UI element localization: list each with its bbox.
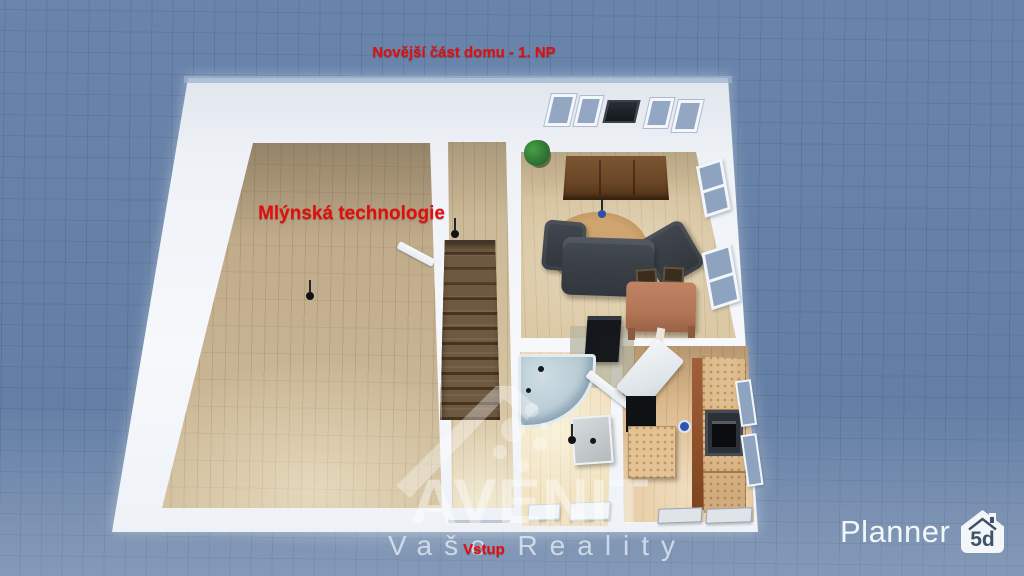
oven <box>705 410 743 456</box>
bath-mat <box>527 503 560 520</box>
floor-mat <box>705 507 752 524</box>
bathroom-sink <box>570 415 613 466</box>
wall-top-edge <box>184 76 732 83</box>
planner5d-logo: Planner 5d <box>840 508 1006 555</box>
dining-chair <box>663 266 685 283</box>
ceiling-lamp <box>451 230 459 238</box>
tv-screen <box>602 100 640 123</box>
sideboard <box>563 156 669 200</box>
floorplan-title-label: Novější část domu - 1. NP <box>314 44 614 61</box>
cabinet-side-panel <box>692 358 704 510</box>
ceiling-lamp <box>568 436 576 444</box>
dining-table <box>626 281 697 332</box>
staircase <box>440 240 500 420</box>
bathroom-cabinet <box>598 336 618 362</box>
ceiling-lamp <box>306 292 314 300</box>
entrance-door <box>448 510 510 523</box>
planner-wordmark: Planner <box>840 514 950 550</box>
ceiling-lamp <box>598 210 606 218</box>
kitchen-counter <box>628 426 676 478</box>
scene-viewport[interactable]: AVENIT Vaše Reality Novější část domu - … <box>0 0 1024 576</box>
room-label: Mlýnská technologie <box>229 203 474 225</box>
badge-text: 5d <box>971 528 996 551</box>
marker-dot <box>678 420 691 433</box>
floor-mat <box>657 507 702 524</box>
planner-5d-house-icon: 5d <box>959 508 1006 555</box>
floor-plan <box>100 70 770 540</box>
bath-mat <box>569 501 610 520</box>
entrance-label: Vstup <box>434 541 534 558</box>
